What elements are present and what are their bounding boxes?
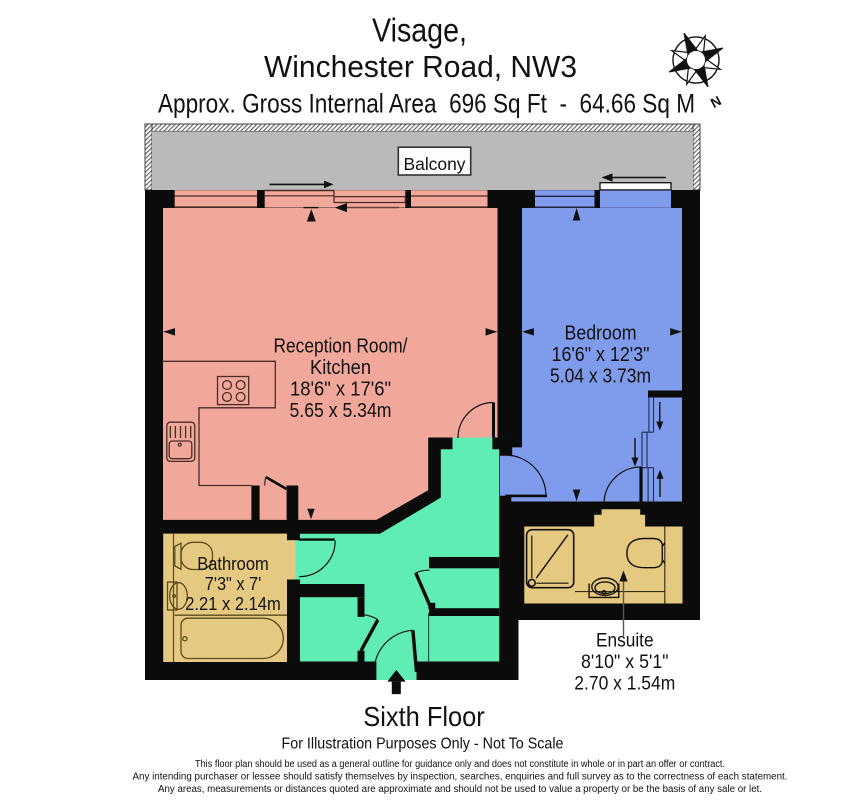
svg-text:Sixth Floor: Sixth Floor: [363, 701, 485, 732]
svg-text:18'6" x 17'6": 18'6" x 17'6": [290, 379, 391, 401]
svg-text:Ensuite: Ensuite: [596, 631, 654, 652]
svg-text:5.04 x 3.73m: 5.04 x 3.73m: [550, 366, 651, 388]
svg-text:Approx. Gross Internal Area 6: Approx. Gross Internal Area 696 Sq Ft - …: [158, 89, 695, 119]
svg-text:For Illustration Purposes Only: For Illustration Purposes Only - Not To …: [282, 736, 564, 753]
svg-text:Any areas, measurements or dis: Any areas, measurements or distances quo…: [158, 784, 762, 795]
svg-text:16'6" x 12'3": 16'6" x 12'3": [552, 344, 650, 366]
svg-text:7'3" x 7': 7'3" x 7': [205, 574, 262, 594]
svg-text:2.21 x 2.14m: 2.21 x 2.14m: [185, 594, 281, 614]
svg-text:8'10" x 5'1": 8'10" x 5'1": [581, 652, 669, 673]
svg-text:Bathroom: Bathroom: [197, 554, 269, 574]
svg-text:2.70 x 1.54m: 2.70 x 1.54m: [574, 674, 675, 695]
svg-text:Bedroom: Bedroom: [565, 323, 637, 345]
svg-text:Winchester Road, NW3: Winchester Road, NW3: [264, 49, 577, 84]
svg-text:This floor plan should be used: This floor plan should be used as a gene…: [195, 759, 725, 770]
svg-text:5.65 x 5.34m: 5.65 x 5.34m: [290, 400, 392, 422]
svg-text:Reception Room/: Reception Room/: [274, 336, 408, 358]
svg-text:Any intending purchaser or les: Any intending purchaser or lessee should…: [133, 772, 788, 783]
svg-text:Kitchen: Kitchen: [310, 357, 371, 379]
svg-text:Balcony: Balcony: [404, 154, 466, 174]
svg-text:Visage,: Visage,: [372, 12, 467, 49]
